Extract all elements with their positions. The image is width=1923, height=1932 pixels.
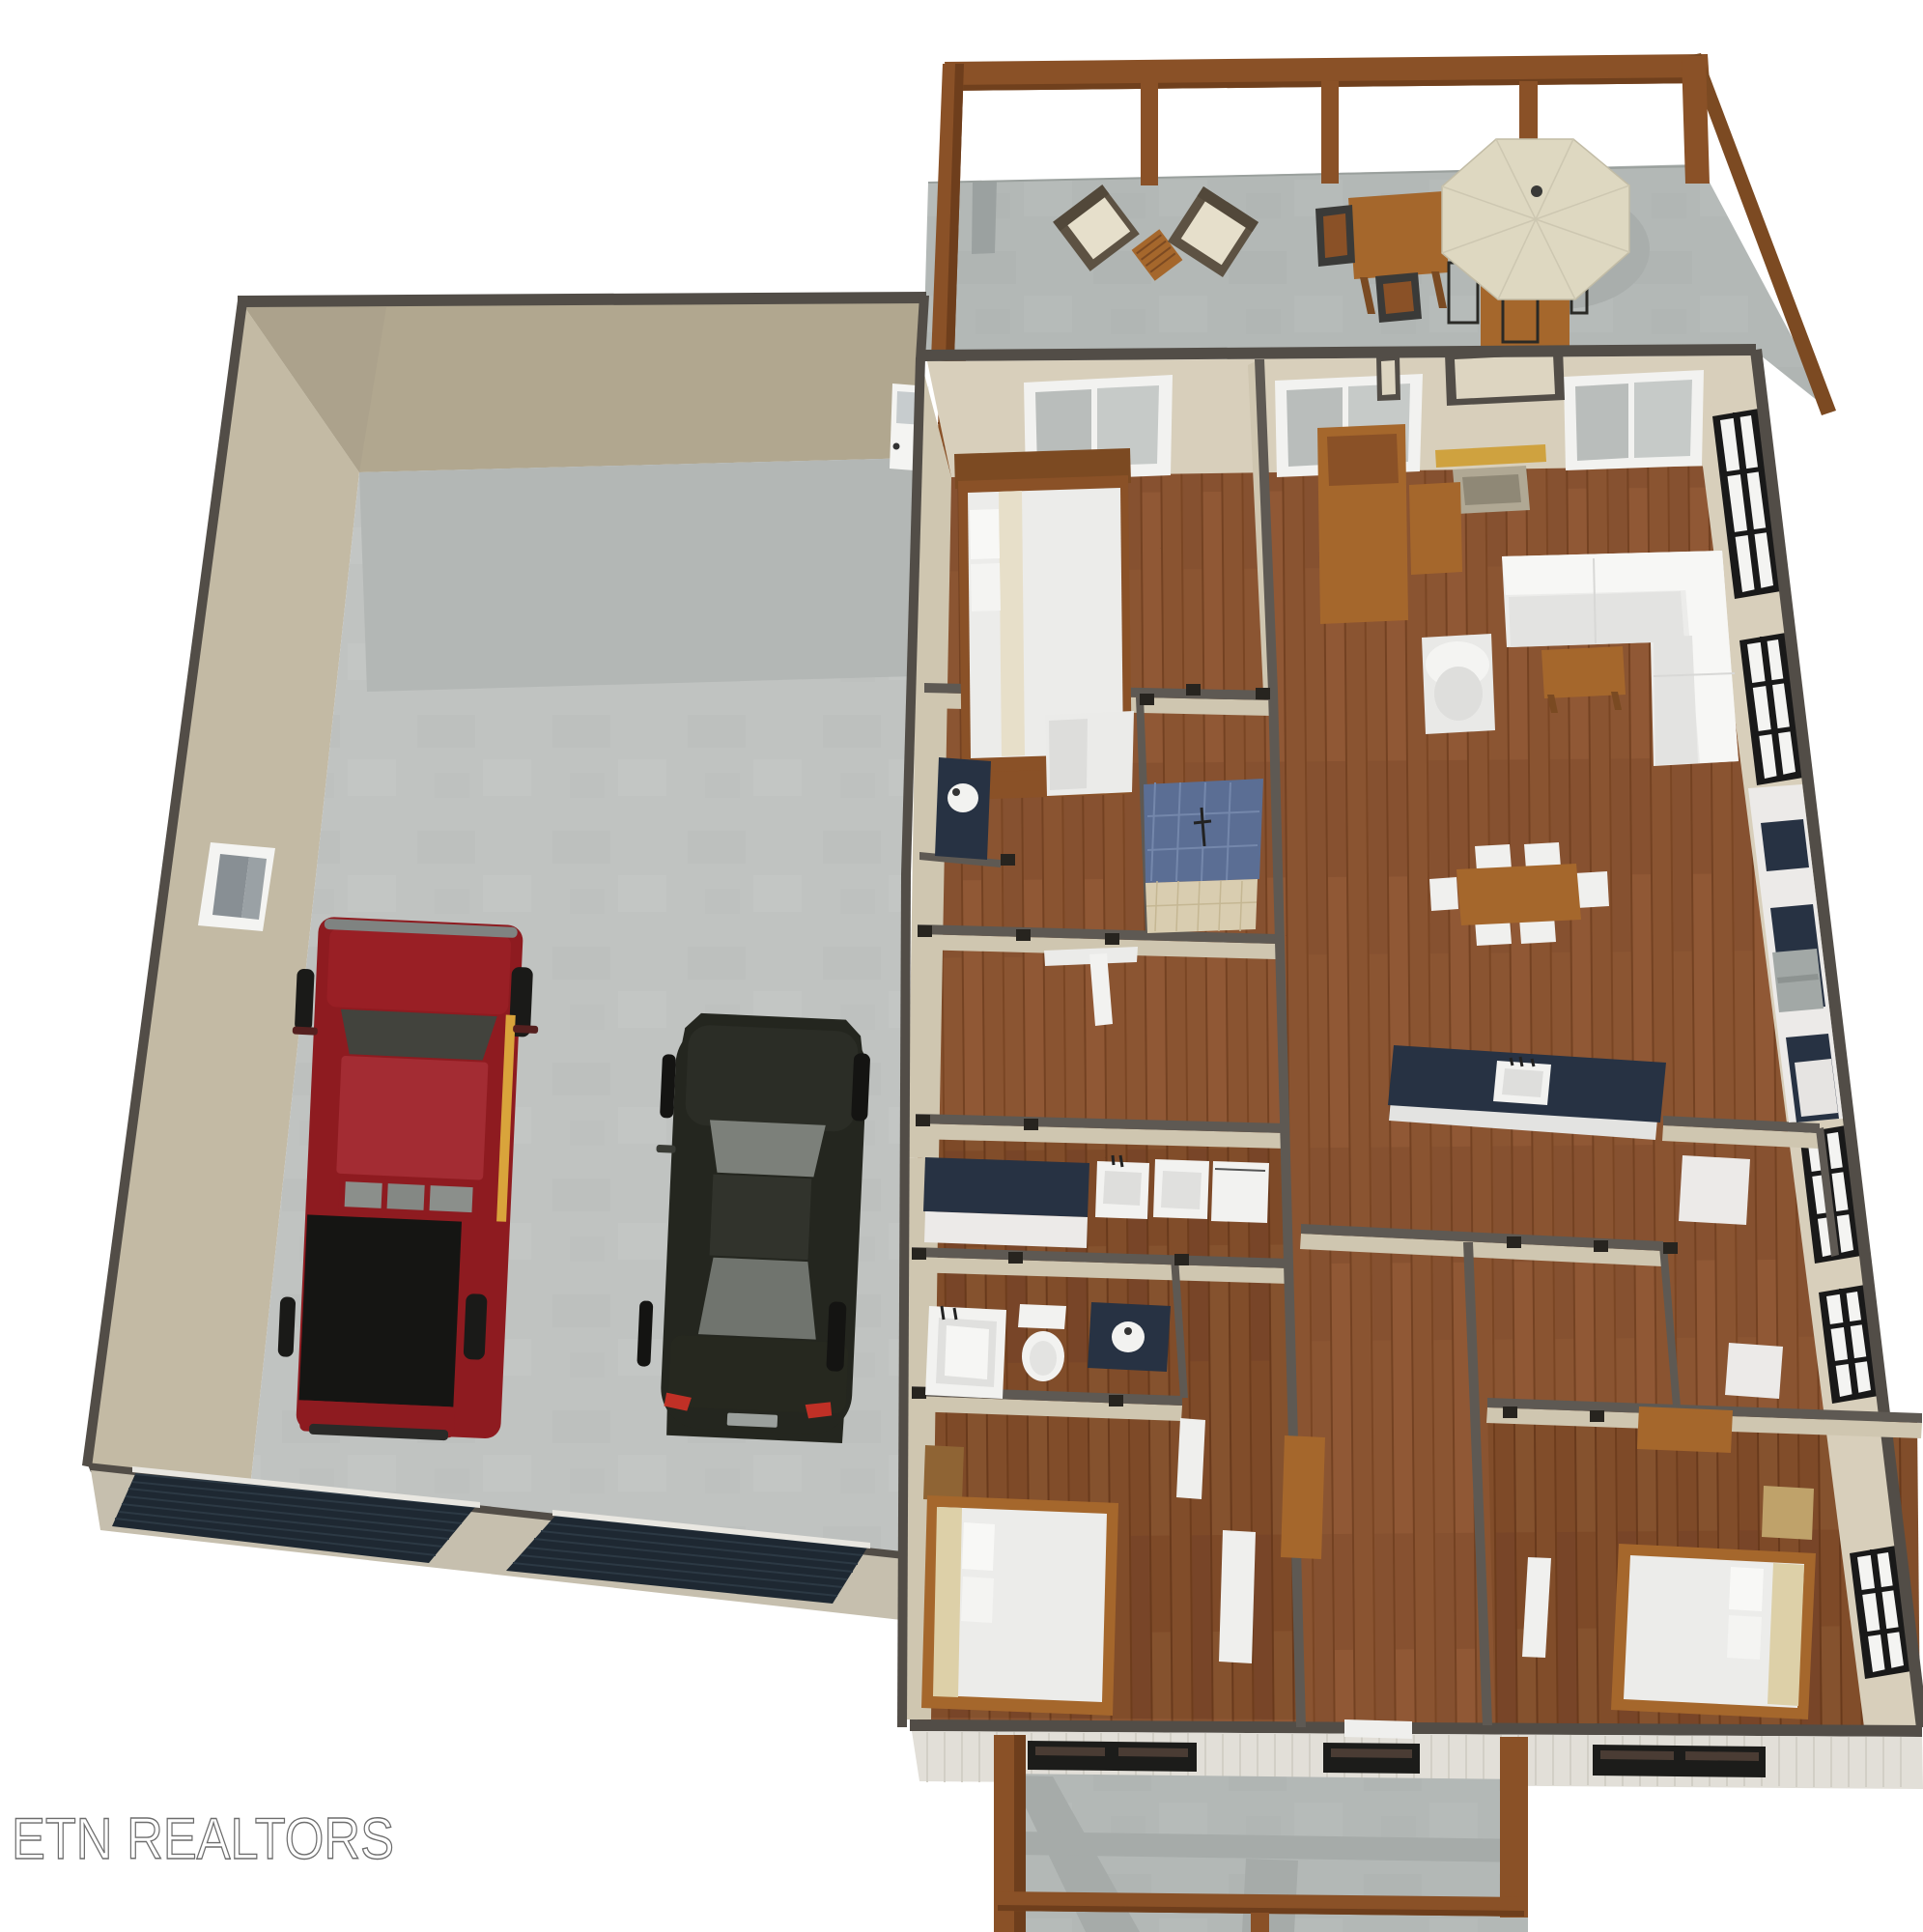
svg-text:ETN REALTORS: ETN REALTORS [12,1806,394,1871]
